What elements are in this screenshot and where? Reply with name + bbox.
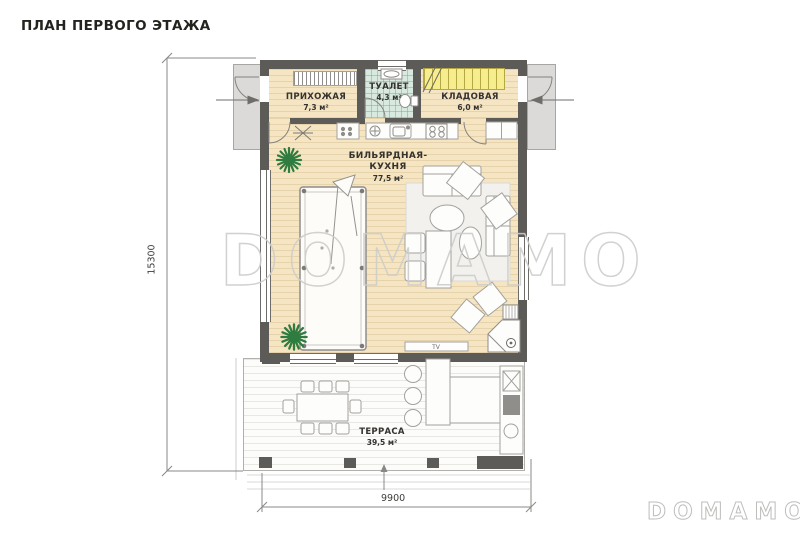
wall-toilet-main <box>385 118 421 124</box>
room-label-hallway: ПРИХОЖАЯ 7,3 м² <box>286 92 346 112</box>
room-label-storage: КЛАДОВАЯ 6,0 м² <box>441 92 498 112</box>
dimension-label-vertical: 15300 <box>147 240 158 280</box>
wall-storage-main-left <box>421 118 461 124</box>
room-label-billiard-kitchen: БИЛЬЯРДНАЯ- КУХНЯ 77,5 м² <box>349 151 428 183</box>
wall-toilet-storage <box>413 69 421 124</box>
window-bottom-right <box>354 353 398 364</box>
wall-hallway-toilet <box>357 69 365 124</box>
terrace-deck <box>243 358 525 471</box>
wall-right <box>518 60 527 362</box>
door-opening-hallway <box>260 76 269 102</box>
porch-left <box>233 64 262 150</box>
wall-hallway-main <box>290 118 357 124</box>
dimension-label-horizontal: 9900 <box>381 493 405 504</box>
window-bottom-left <box>290 353 336 364</box>
brand-logo: DOMAMO <box>647 501 800 524</box>
porch-right <box>527 64 556 150</box>
window-toilet <box>378 60 406 71</box>
wall-storage-main-right <box>486 118 518 124</box>
watermark: DOMAMO <box>220 226 651 296</box>
door-opening-storage <box>518 76 527 102</box>
floor-plan-screenshot: ПЛАН ПЕРВОГО ЭТАЖА <box>0 0 800 534</box>
page-title: ПЛАН ПЕРВОГО ЭТАЖА <box>21 18 211 34</box>
room-label-toilet: ТУАЛЕТ 4,3 м² <box>369 82 408 102</box>
wardrobe-icon <box>293 71 357 86</box>
room-label-terrace: ТЕРРАСА 39,5 м² <box>359 427 405 447</box>
stairs-icon <box>423 68 505 90</box>
